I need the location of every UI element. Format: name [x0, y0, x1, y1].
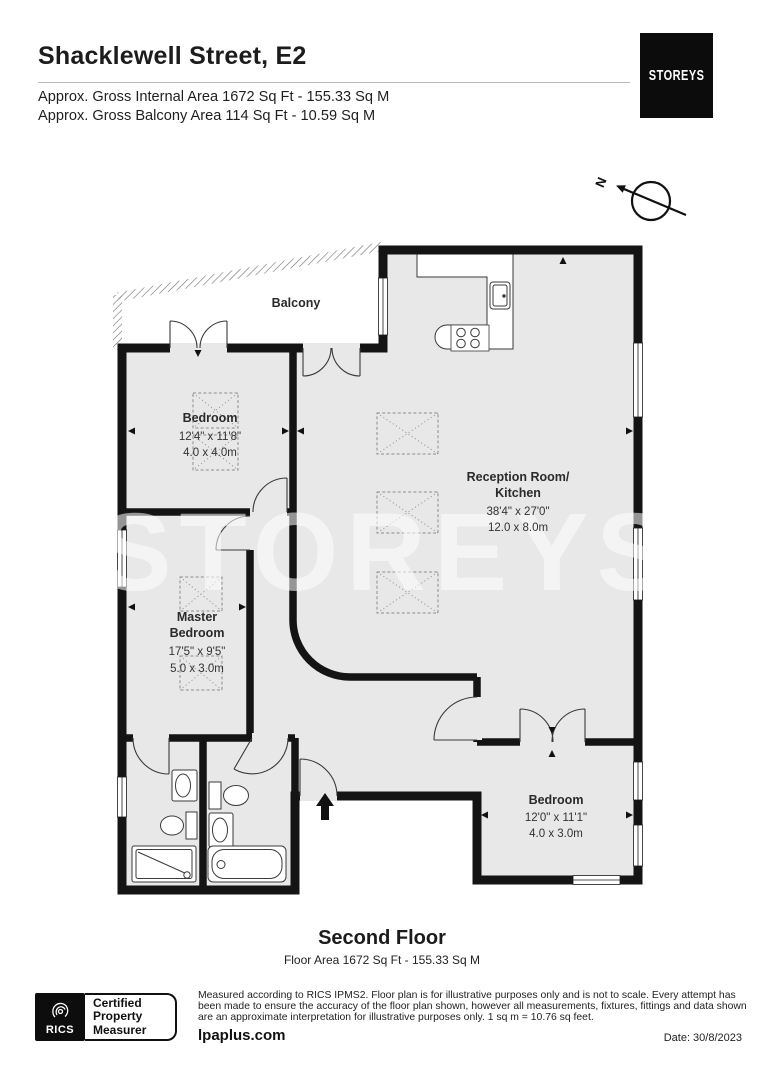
- window: [634, 343, 643, 417]
- master-label-line1: Master: [177, 610, 217, 624]
- badge-line2: Property: [93, 1010, 175, 1024]
- certified-property-measurer-badge: Certified Property Measurer: [85, 993, 177, 1041]
- rics-lion-icon: [47, 999, 73, 1023]
- website-text: lpaplus.com: [198, 1027, 286, 1044]
- rics-logo: RICS: [35, 993, 85, 1041]
- master-imperial: 17'5" x 9'5": [169, 646, 226, 658]
- balcony-label: Balcony: [272, 296, 321, 310]
- compass-icon: N: [592, 175, 686, 220]
- bedroom1-metric: 4.0 x 4.0m: [183, 447, 237, 459]
- bedroom2-metric: 4.0 x 3.0m: [529, 828, 583, 840]
- floorplan-page: Shacklewell Street, E2 Approx. Gross Int…: [0, 0, 764, 1080]
- window: [634, 825, 643, 866]
- reception-label-line2: Kitchen: [495, 486, 541, 500]
- floor-name: Second Floor: [0, 927, 764, 950]
- badge-line1: Certified: [93, 997, 175, 1011]
- kitchen-hob: [451, 325, 489, 351]
- bedroom2-label: Bedroom: [529, 793, 584, 807]
- window: [118, 777, 127, 817]
- reception-metric: 12.0 x 8.0m: [488, 522, 548, 534]
- ensuite-shower: [132, 846, 196, 882]
- bedroom2-imperial: 12'0" x 11'1": [525, 812, 587, 824]
- master-metric: 5.0 x 3.0m: [170, 663, 224, 675]
- window: [573, 876, 620, 885]
- floor-area: Floor Area 1672 Sq Ft - 155.33 Sq M: [0, 953, 764, 967]
- balcony-floor: [122, 246, 383, 348]
- bathroom-bathtub: [208, 846, 286, 882]
- date-text: Date: 30/8/2023: [444, 1032, 742, 1044]
- compass-north-label: N: [592, 175, 609, 190]
- window: [634, 762, 643, 800]
- bathroom-sink: [209, 813, 233, 847]
- ensuite-sink: [172, 770, 197, 801]
- rics-word: RICS: [46, 1024, 74, 1036]
- floorplan-drawing: N: [0, 0, 764, 1080]
- bedroom1-imperial: 12'4" x 11'8": [179, 431, 241, 443]
- master-label-line2: Bedroom: [170, 626, 225, 640]
- reception-label-line1: Reception Room/: [467, 470, 570, 484]
- disclaimer-text: Measured according to RICS IPMS2. Floor …: [198, 991, 750, 1024]
- badge-line3: Measurer: [93, 1024, 175, 1038]
- bedroom1-label: Bedroom: [183, 411, 238, 425]
- watermark: STOREYS: [98, 491, 678, 614]
- window: [379, 278, 388, 335]
- reception-imperial: 38'4" x 27'0": [486, 506, 549, 518]
